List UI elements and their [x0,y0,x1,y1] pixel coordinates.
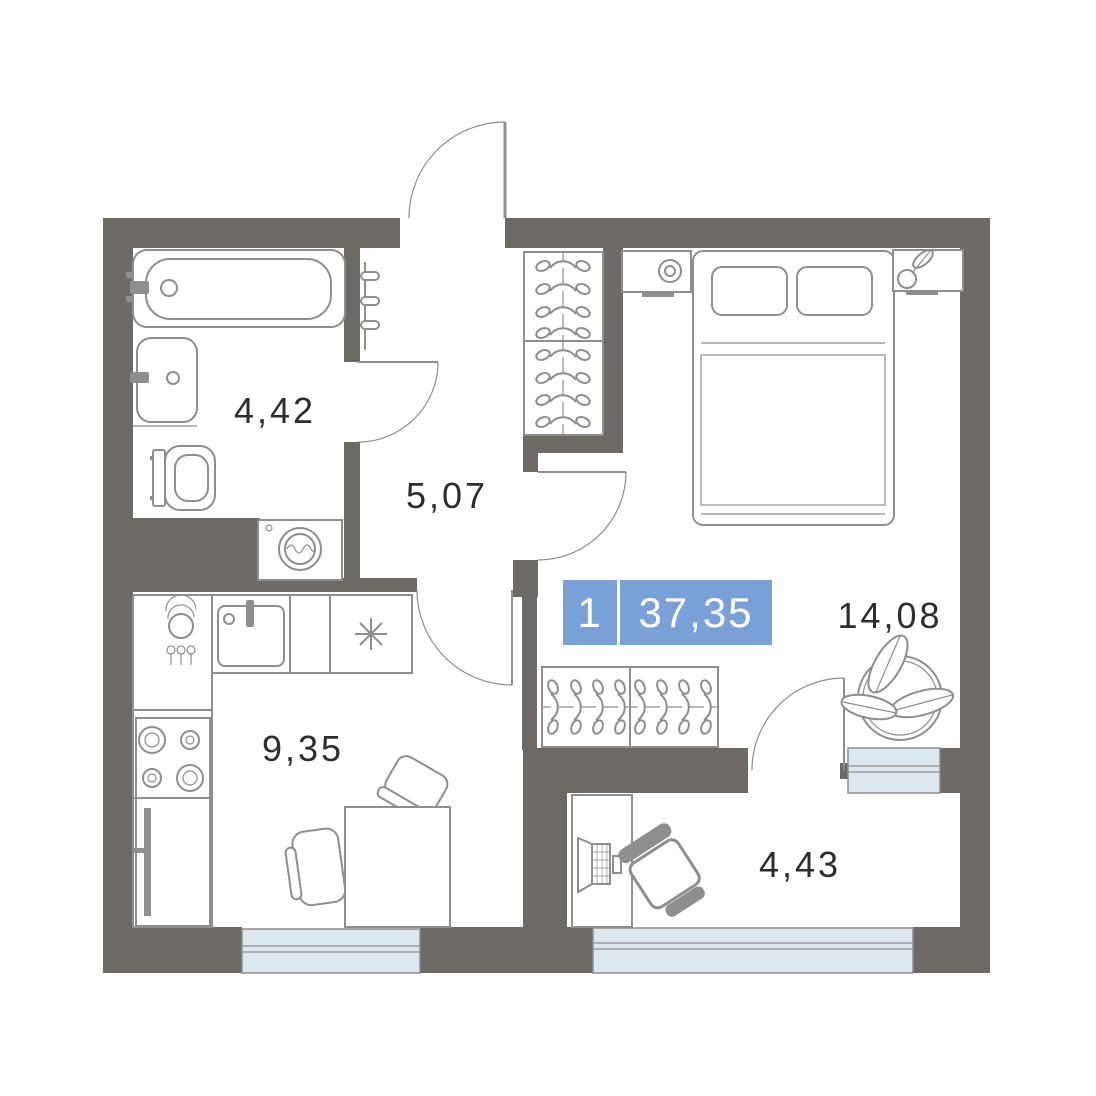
wall-top-right [505,218,990,248]
area-badge: 1 37,35 [563,580,772,645]
nightstand-right [893,247,963,295]
wall-bottom-2 [420,927,593,973]
living-loggia-window [848,748,940,793]
stove-icon [136,718,210,798]
room-label-hallway: 5,07 [406,475,488,516]
wall-bathroom-kitchen-block [133,518,260,592]
wall-right [960,218,990,973]
bathroom-door [358,362,438,442]
bedroom-furniture [622,247,963,525]
wall-left [103,218,133,973]
room-label-living-room: 14,08 [837,595,942,636]
room-label-loggia: 4,43 [759,844,841,885]
loggia-door [752,678,844,770]
floor-plan-page: 4,42 5,07 9,35 14,08 4,43 1 37,35 [0,0,1096,1096]
dining-table-icon [345,807,450,927]
wall-top-left [103,218,400,248]
living-room-door [538,472,626,560]
room-label-bathroom: 4,42 [234,390,316,431]
wall-hall-living [522,560,537,750]
wall-bottom-1 [103,927,242,973]
wall-bathroom-lower [344,442,360,592]
dining-chair-icon [283,827,347,908]
loggia-window [593,928,913,973]
wall-bathroom-upper [344,248,360,362]
floor-plan-drawing: 4,42 5,07 9,35 14,08 4,43 1 37,35 [0,0,1096,1096]
bathtub-icon [126,250,345,327]
pillow-right [797,267,872,315]
wall-living-loggia [523,748,748,793]
washbasin-icon [130,338,197,426]
towel-radiator-icon [361,262,379,350]
kitchen-door [417,590,512,685]
room-label-kitchen: 9,35 [262,728,344,769]
nightstand-left [622,251,691,297]
wall-kitchen-top [360,578,417,592]
pillow-left [712,267,787,315]
large-plant-icon [839,630,956,740]
wall-wardrobe-right [603,248,623,433]
wall-below-wardrobe-v [523,453,538,472]
rooms-count-value: 1 [577,589,602,636]
wall-window-right [940,748,960,793]
loggia-furniture [572,795,712,927]
kitchen-sink-icon [218,600,284,666]
fridge-icon [133,798,210,926]
washing-machine-icon [258,520,342,580]
toilet-icon [150,446,215,510]
wall-bottom-3 [913,927,990,973]
kitchen-window [242,929,420,973]
hall-wardrobe-icon [524,252,603,435]
wall-kitchen-loggia [523,793,567,927]
total-area-value: 37,35 [638,589,753,636]
living-wardrobe-icon [542,667,718,747]
bed-icon [693,251,894,525]
entrance-door [409,122,505,218]
